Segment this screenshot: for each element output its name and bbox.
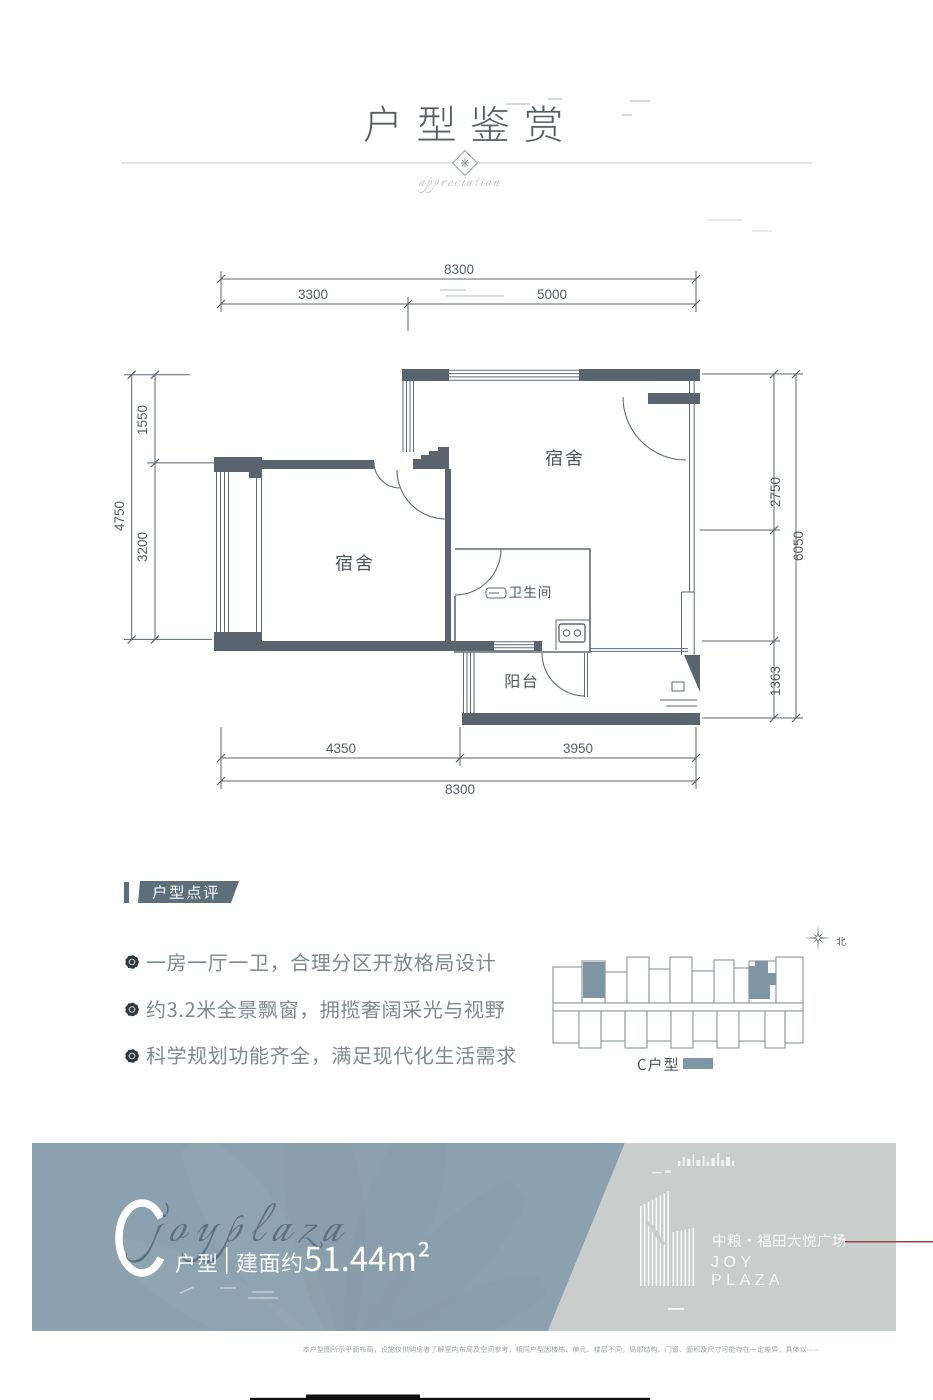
svg-text:PLAZA: PLAZA bbox=[711, 1272, 784, 1289]
svg-text:5000: 5000 bbox=[537, 287, 567, 302]
svg-text:6050: 6050 bbox=[791, 531, 806, 561]
svg-text:1363: 1363 bbox=[768, 666, 783, 696]
svg-text:JOY: JOY bbox=[711, 1254, 756, 1271]
svg-text:8300: 8300 bbox=[444, 262, 474, 277]
svg-text:3950: 3950 bbox=[563, 741, 593, 756]
svg-text:4750: 4750 bbox=[112, 501, 127, 531]
svg-text:1550: 1550 bbox=[135, 405, 150, 435]
svg-text:3300: 3300 bbox=[298, 287, 328, 302]
svg-text:8300: 8300 bbox=[445, 782, 475, 797]
svg-text:2750: 2750 bbox=[768, 477, 783, 507]
svg-text:4350: 4350 bbox=[326, 741, 356, 756]
svg-text:3200: 3200 bbox=[135, 532, 150, 562]
